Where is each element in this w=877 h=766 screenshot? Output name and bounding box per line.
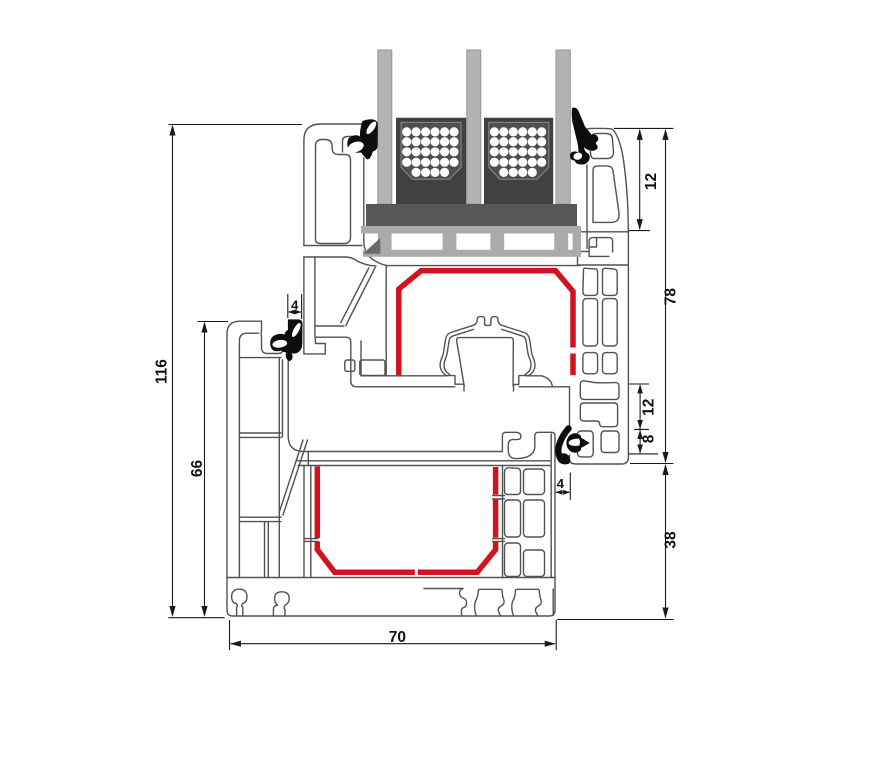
svg-text:4: 4: [557, 476, 565, 491]
svg-text:8: 8: [641, 434, 658, 443]
svg-text:12: 12: [641, 399, 658, 416]
svg-text:70: 70: [389, 629, 406, 646]
svg-text:66: 66: [189, 460, 206, 478]
svg-text:4: 4: [291, 297, 299, 312]
svg-text:78: 78: [663, 288, 680, 306]
svg-text:116: 116: [154, 359, 171, 384]
svg-text:12: 12: [643, 173, 660, 190]
svg-text:38: 38: [663, 531, 680, 549]
